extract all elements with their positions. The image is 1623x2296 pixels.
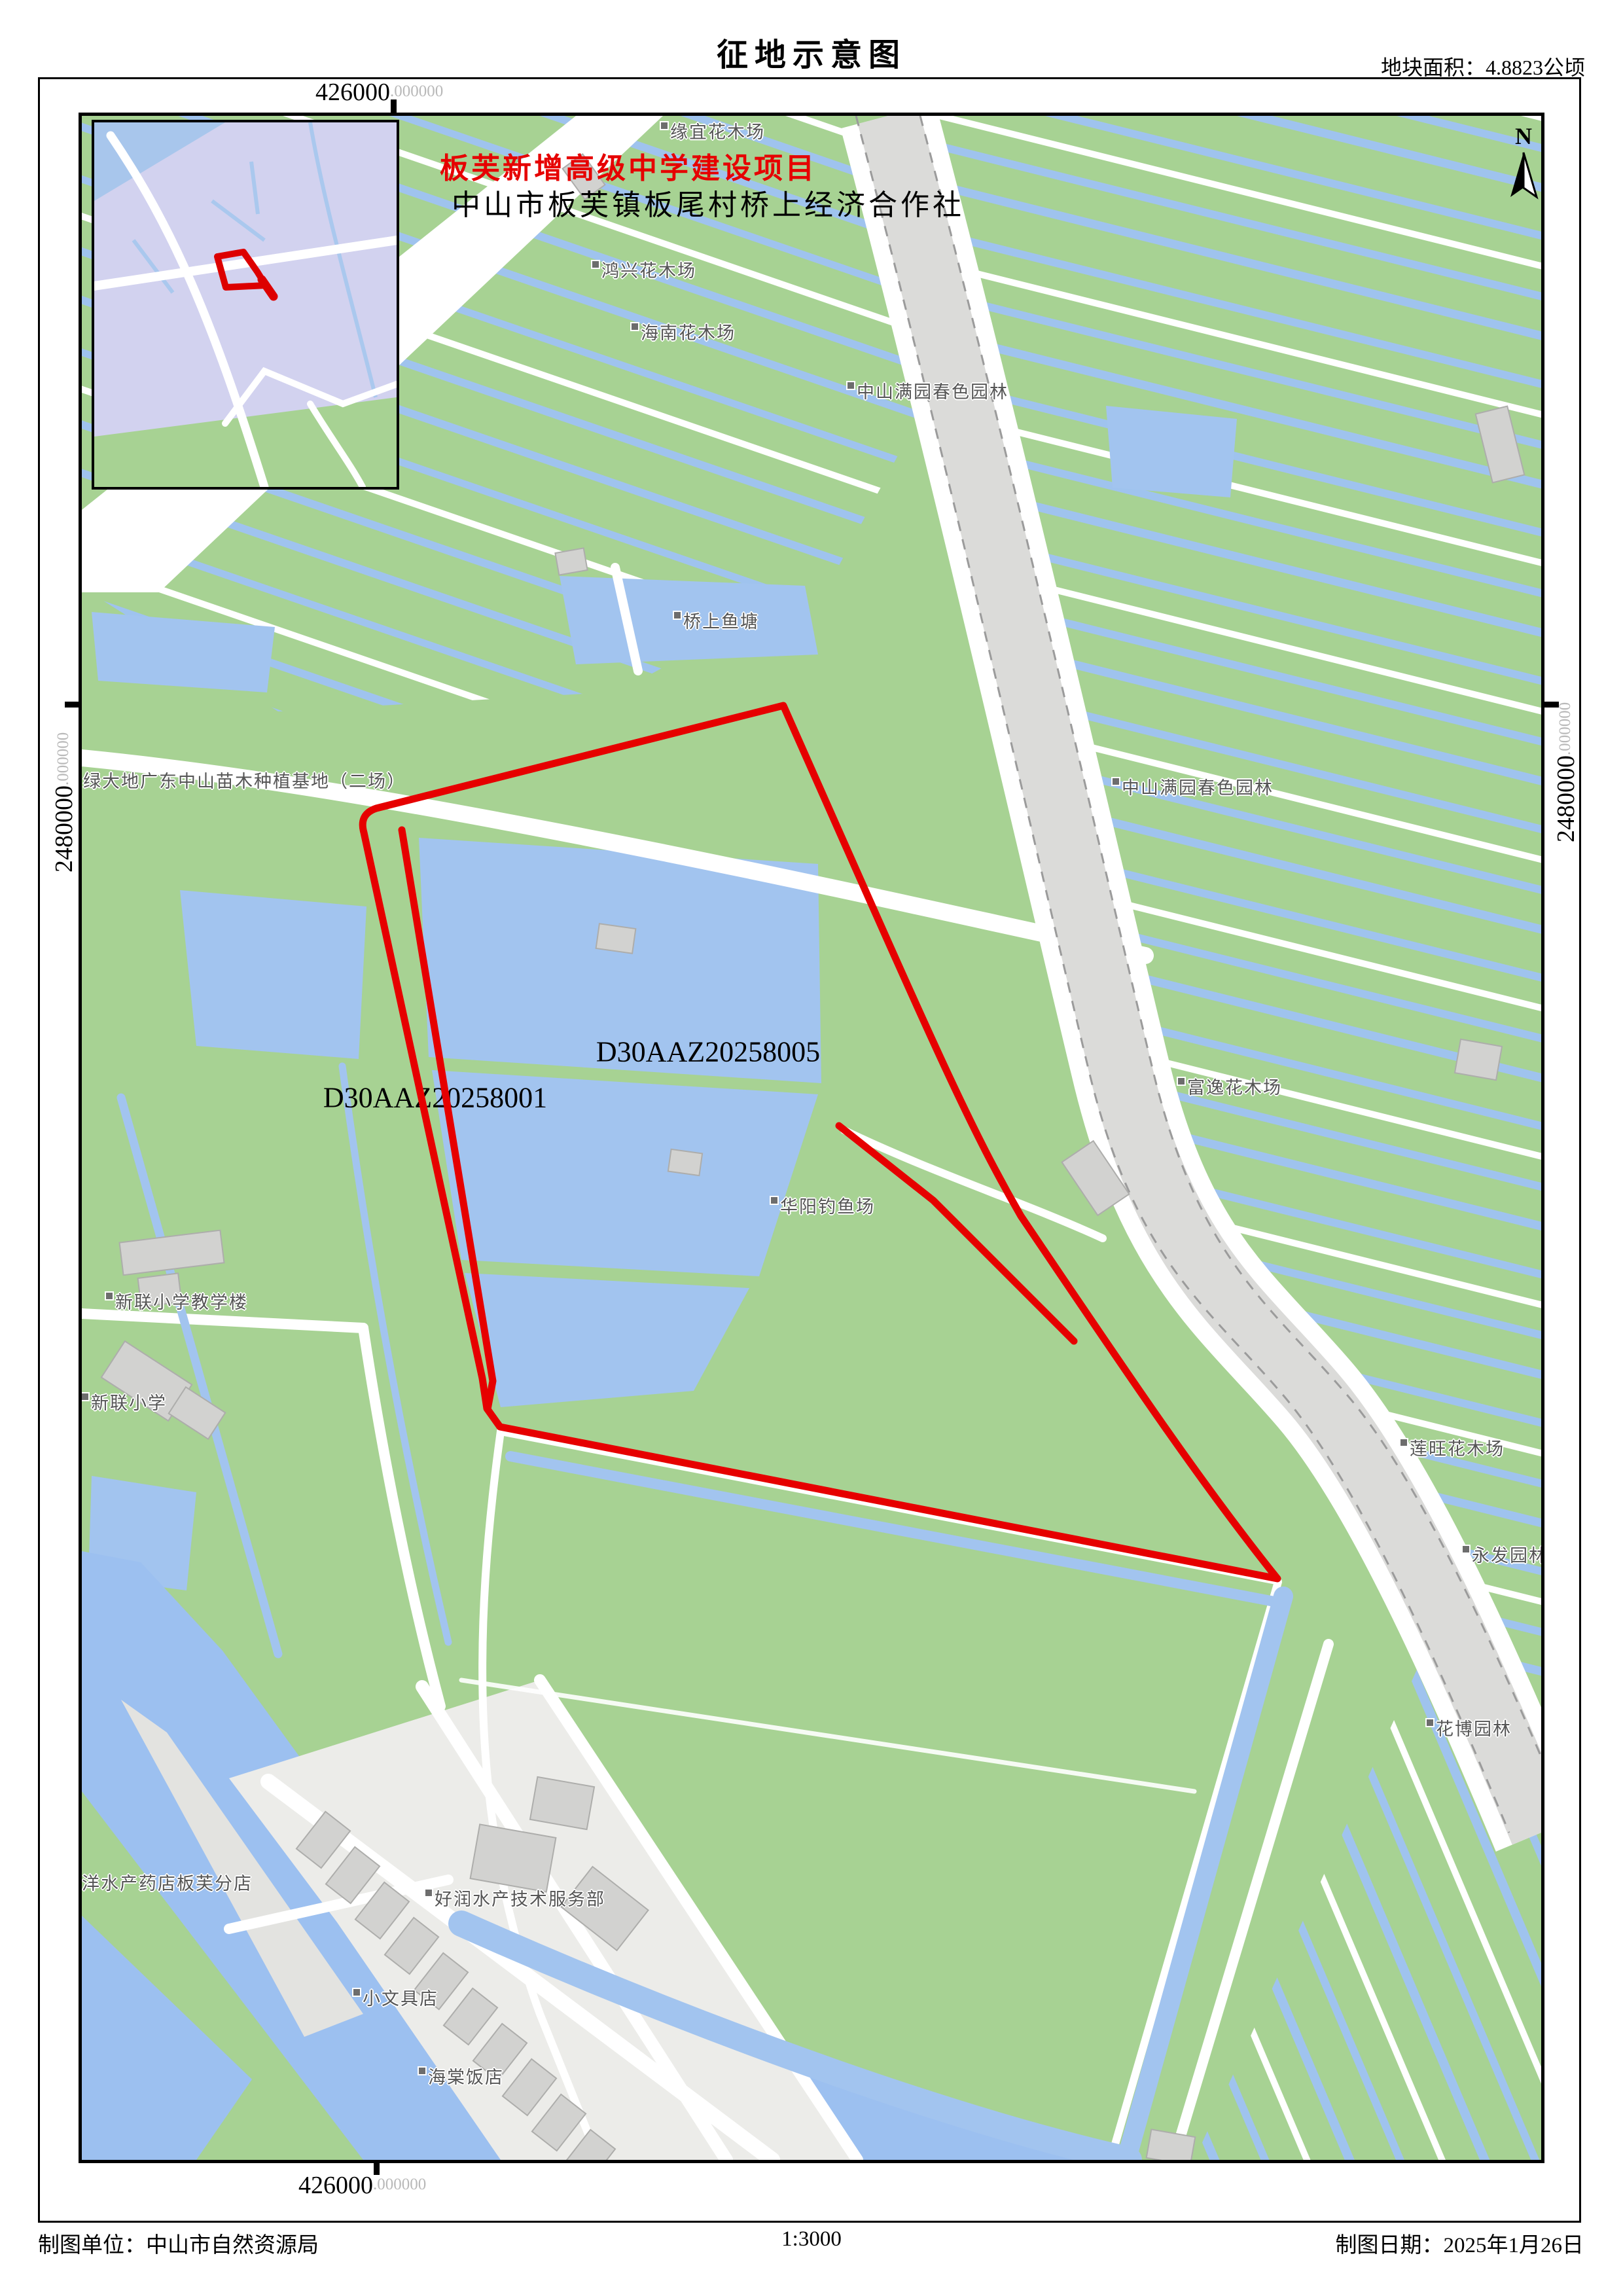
location-inset-map [92, 120, 399, 490]
boundary-notch [839, 1126, 1074, 1341]
coordinate-x-top: 426000.000000 [315, 78, 443, 107]
map-sheet: 征地示意图 地块面积：4.8823公顷 426000.000000 426000… [0, 0, 1623, 2296]
coordinate-y-left: 2480000.000000 [50, 656, 79, 872]
boundary-strip [402, 830, 493, 1409]
coordinate-y-right: 2480000.000000 [1552, 626, 1580, 842]
boundary-main [363, 706, 1277, 1579]
footer-scale: 1:3000 [781, 2227, 842, 2251]
footer-agency: 制图单位：中山市自然资源局 [38, 2227, 319, 2259]
footer-date: 制图日期：2025年1月26日 [1336, 2227, 1584, 2259]
sheet-title: 征地示意图 [0, 29, 1623, 75]
map-canvas: 缘宜花木场鸿兴花木场海南花木场中山满园春色园林桥上鱼塘绿大地广东中山苗木种植基地… [79, 113, 1544, 2163]
coordinate-x-bottom: 426000.000000 [298, 2171, 426, 2200]
inset-graphics [94, 122, 397, 487]
